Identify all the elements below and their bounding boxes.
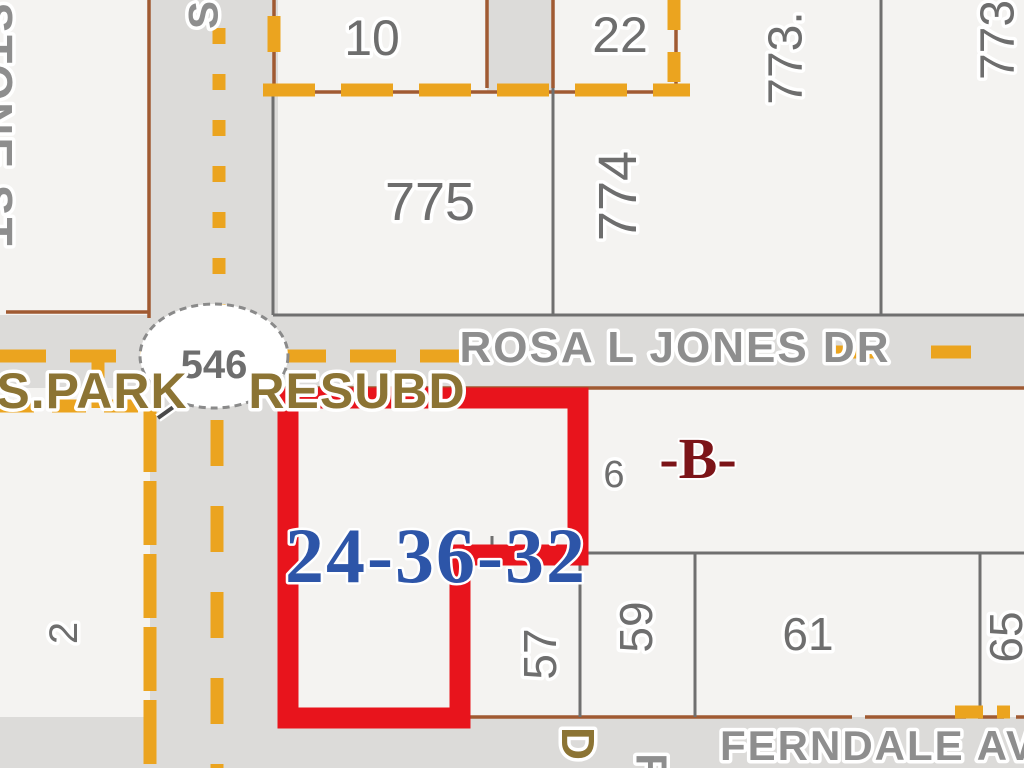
street-label-ferndale: FERNDALE AV bbox=[720, 722, 1024, 768]
parcel-label-774: 774 bbox=[588, 151, 648, 241]
parcel-label-10: 10 bbox=[344, 10, 400, 66]
parcel-label-59: 59 bbox=[610, 601, 662, 652]
parcel-map[interactable]: 546 10 22 775 774 773. 773 57 59 61 65 2… bbox=[0, 0, 1024, 768]
parcel-label-775: 775 bbox=[385, 172, 475, 232]
parcel-label-6: 6 bbox=[603, 454, 624, 496]
parcel-label-773a: 773. bbox=[760, 11, 813, 104]
map-canvas: 546 10 22 775 774 773. 773 57 59 61 65 2… bbox=[0, 0, 1024, 768]
parcel-label-65: 65 bbox=[980, 611, 1024, 662]
section-township-range-label: 24-36-32 bbox=[285, 512, 587, 599]
block-label-b: -B- bbox=[659, 426, 736, 491]
parcel-label-773b: 773 bbox=[972, 0, 1024, 80]
route-oval-number: 546 bbox=[181, 343, 248, 387]
road-alley bbox=[487, 0, 553, 92]
parcel-label-22: 22 bbox=[592, 7, 648, 63]
street-label-fragment-r: R bbox=[627, 753, 676, 768]
parcel-label-57: 57 bbox=[514, 628, 566, 679]
subdivision-label-part2: RESUBD bbox=[248, 363, 465, 419]
street-label-rosa-l-jones: ROSA L JONES DR bbox=[460, 323, 891, 372]
subdivision-label-fragment-d: D bbox=[552, 727, 604, 761]
subdivision-label-part1: S.PARK bbox=[0, 363, 188, 419]
street-label-stone-clipped: STONE ST bbox=[0, 2, 22, 247]
parcel-label-2: 2 bbox=[42, 622, 86, 644]
parcel-label-61: 61 bbox=[782, 608, 833, 660]
street-label-fragment-s: S bbox=[180, 0, 227, 29]
